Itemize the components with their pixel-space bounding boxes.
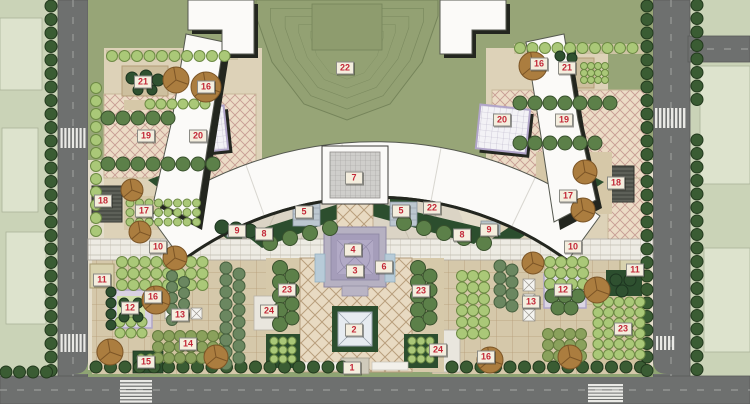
central-platform-4 bbox=[324, 227, 386, 296]
light-tree-icon bbox=[140, 268, 151, 279]
street-tree-icon bbox=[45, 284, 57, 296]
light-tree-icon bbox=[615, 43, 626, 54]
grey-tree-icon bbox=[233, 340, 245, 352]
olive-tree-icon bbox=[543, 340, 554, 351]
dark-tree-icon bbox=[555, 51, 565, 61]
street-tree-icon bbox=[45, 68, 57, 80]
street-tree-icon bbox=[691, 323, 703, 335]
light-tree-icon bbox=[614, 308, 624, 318]
light-tree-icon bbox=[169, 51, 180, 62]
light-tree-icon bbox=[604, 350, 614, 360]
medium-tree-icon bbox=[437, 226, 452, 241]
light-tree-icon bbox=[197, 280, 208, 291]
dark-tree-icon bbox=[215, 220, 229, 234]
light-tree-icon bbox=[151, 257, 162, 268]
grey-tree-icon bbox=[506, 276, 518, 288]
light-tree-icon bbox=[193, 218, 201, 226]
street-tree-icon bbox=[641, 162, 653, 174]
grey-tree-icon bbox=[233, 292, 245, 304]
street-tree-icon bbox=[641, 270, 653, 282]
light-tree-icon bbox=[578, 268, 589, 279]
medium-tree-icon bbox=[603, 96, 617, 110]
street-tree-icon bbox=[641, 243, 653, 255]
crosswalk-stripe bbox=[83, 128, 85, 148]
pyramid-fountain-2 bbox=[332, 306, 378, 352]
medium-tree-icon bbox=[161, 111, 175, 125]
light-tree-icon bbox=[590, 43, 601, 54]
street-tree-icon bbox=[14, 366, 26, 378]
light-tree-icon bbox=[457, 294, 468, 305]
street-tree-icon bbox=[45, 230, 57, 242]
crosswalk-stripe bbox=[83, 334, 85, 352]
medium-tree-icon bbox=[573, 136, 587, 150]
olive-tree-icon bbox=[186, 353, 197, 364]
light-tree-icon bbox=[457, 305, 468, 316]
olive-tree-icon bbox=[543, 329, 554, 340]
dark-tree-icon bbox=[624, 274, 636, 286]
dark-tree-icon bbox=[133, 312, 143, 322]
light-tree-icon bbox=[126, 209, 134, 217]
street-tree-icon bbox=[641, 203, 653, 215]
dark-tree-icon bbox=[140, 70, 152, 82]
street-tree-icon bbox=[691, 296, 703, 308]
light-tree-icon bbox=[174, 199, 182, 207]
light-tree-icon bbox=[468, 305, 479, 316]
street-tree-icon bbox=[641, 189, 653, 201]
grey-tree-icon bbox=[506, 300, 518, 312]
light-tree-icon bbox=[155, 218, 163, 226]
crosswalk-stripe bbox=[68, 128, 70, 148]
light-tree-icon bbox=[595, 70, 602, 77]
light-tree-icon bbox=[178, 99, 188, 109]
feature-9-right bbox=[481, 221, 500, 235]
street-tree-icon bbox=[504, 361, 516, 373]
street-tree-icon bbox=[250, 361, 262, 373]
medium-tree-icon bbox=[423, 283, 437, 297]
crosswalk-stripe bbox=[64, 334, 66, 352]
light-tree-icon bbox=[157, 51, 168, 62]
light-tree-icon bbox=[417, 346, 425, 354]
olive-tree-icon bbox=[208, 331, 219, 342]
grey-tree-icon bbox=[167, 315, 178, 326]
street-tree-icon bbox=[641, 68, 653, 80]
light-tree-icon bbox=[183, 199, 191, 207]
grey-tree-icon bbox=[167, 271, 178, 282]
street-tree-icon bbox=[691, 283, 703, 295]
crosswalk-stripe bbox=[663, 108, 665, 128]
crosswalk-stripe bbox=[68, 334, 70, 352]
street-tree-icon bbox=[45, 243, 57, 255]
grey-tree-icon bbox=[179, 310, 190, 321]
grey-tree-icon bbox=[494, 260, 506, 272]
light-tree-icon bbox=[137, 354, 145, 362]
grey-tree-icon bbox=[167, 282, 178, 293]
crosswalk-stripe bbox=[588, 397, 623, 399]
street-tree-icon bbox=[641, 95, 653, 107]
medium-tree-icon bbox=[101, 111, 115, 125]
light-tree-icon bbox=[145, 199, 153, 207]
street-tree-icon bbox=[641, 365, 653, 377]
light-tree-icon bbox=[197, 257, 208, 268]
light-tree-icon bbox=[457, 271, 468, 282]
street-tree-icon bbox=[119, 361, 131, 373]
light-tree-icon bbox=[167, 99, 177, 109]
olive-tree-icon bbox=[153, 342, 164, 353]
olive-tree-icon bbox=[554, 329, 565, 340]
light-tree-icon bbox=[155, 199, 163, 207]
light-tree-icon bbox=[117, 268, 128, 279]
medium-tree-icon bbox=[423, 297, 437, 311]
light-tree-icon bbox=[145, 209, 153, 217]
street-tree-icon bbox=[691, 40, 703, 52]
street-tree-icon bbox=[641, 216, 653, 228]
crosswalk-stripe bbox=[76, 334, 78, 352]
grey-tree-icon bbox=[220, 274, 232, 286]
light-tree-icon bbox=[578, 257, 589, 268]
street-tree-icon bbox=[45, 81, 57, 93]
dark-tree-icon bbox=[616, 285, 628, 297]
light-tree-icon bbox=[91, 109, 102, 120]
light-tree-icon bbox=[457, 328, 468, 339]
crosswalk-stripe bbox=[660, 336, 662, 350]
light-tree-icon bbox=[614, 339, 624, 349]
light-tree-icon bbox=[91, 200, 102, 211]
olive-tree-icon bbox=[576, 329, 587, 340]
light-tree-icon bbox=[635, 297, 645, 307]
crosswalk-stripe bbox=[675, 108, 677, 128]
light-tree-icon bbox=[270, 355, 278, 363]
lawn-court bbox=[312, 4, 382, 50]
light-tree-icon bbox=[193, 209, 201, 217]
street-tree-icon bbox=[691, 134, 703, 146]
light-tree-icon bbox=[457, 317, 468, 328]
crosswalk-stripe bbox=[120, 394, 152, 396]
water-channel-right-6 bbox=[385, 254, 395, 282]
light-tree-icon bbox=[174, 209, 182, 217]
light-tree-icon bbox=[417, 337, 425, 345]
light-tree-icon bbox=[588, 77, 595, 84]
light-tree-icon bbox=[408, 346, 416, 354]
street-tree-icon bbox=[45, 270, 57, 282]
street-tree-icon bbox=[641, 41, 653, 53]
street-tree-icon bbox=[691, 161, 703, 173]
street-tree-icon bbox=[45, 338, 57, 350]
street-tree-icon bbox=[691, 242, 703, 254]
light-tree-icon bbox=[91, 96, 102, 107]
street-tree-icon bbox=[519, 361, 531, 373]
light-tree-icon bbox=[625, 339, 635, 349]
medium-tree-icon bbox=[573, 96, 587, 110]
street-tree-icon bbox=[691, 80, 703, 92]
light-tree-icon bbox=[556, 279, 567, 290]
grey-tree-icon bbox=[233, 280, 245, 292]
medium-tree-icon bbox=[131, 157, 145, 171]
crosswalk-stripe bbox=[659, 108, 661, 128]
street-tree-icon bbox=[45, 162, 57, 174]
crosswalk-stripe bbox=[588, 394, 623, 396]
medium-tree-icon bbox=[323, 221, 338, 236]
light-tree-icon bbox=[91, 226, 102, 237]
street-tree-icon bbox=[45, 257, 57, 269]
crosswalk-stripe bbox=[120, 380, 152, 382]
light-tree-icon bbox=[625, 329, 635, 339]
street-tree-icon bbox=[45, 311, 57, 323]
dark-tree-icon bbox=[133, 85, 143, 95]
light-tree-icon bbox=[595, 63, 602, 70]
light-tree-icon bbox=[417, 355, 425, 363]
light-tree-icon bbox=[567, 257, 578, 268]
light-tree-icon bbox=[604, 318, 614, 328]
medium-tree-icon bbox=[457, 231, 472, 246]
olive-tree-icon bbox=[164, 353, 175, 364]
light-tree-icon bbox=[581, 70, 588, 77]
olive-tree-icon bbox=[175, 353, 186, 364]
crosswalk-stripe bbox=[120, 383, 152, 385]
street-tree-icon bbox=[293, 361, 305, 373]
light-tree-icon bbox=[115, 328, 125, 338]
light-tree-icon bbox=[117, 280, 128, 291]
kiosk-11-left bbox=[90, 264, 114, 288]
light-tree-icon bbox=[468, 271, 479, 282]
light-tree-icon bbox=[625, 297, 635, 307]
light-tree-icon bbox=[126, 328, 136, 338]
light-tree-icon bbox=[91, 122, 102, 133]
light-tree-icon bbox=[91, 161, 102, 172]
medium-tree-icon bbox=[417, 221, 432, 236]
light-tree-icon bbox=[604, 329, 614, 339]
light-tree-icon bbox=[457, 282, 468, 293]
crosswalk-stripe bbox=[672, 336, 674, 350]
olive-tree-icon bbox=[164, 342, 175, 353]
light-tree-icon bbox=[635, 350, 645, 360]
light-tree-icon bbox=[468, 317, 479, 328]
medium-tree-icon bbox=[285, 311, 299, 325]
light-tree-icon bbox=[635, 318, 645, 328]
medium-tree-icon bbox=[588, 136, 602, 150]
street-tree-icon bbox=[548, 361, 560, 373]
medium-tree-icon bbox=[588, 96, 602, 110]
street-tree-icon bbox=[641, 230, 653, 242]
site-plan-canvas: 2221161920162120191817171898985572243610… bbox=[0, 0, 750, 404]
dark-tree-icon bbox=[229, 222, 243, 236]
street-tree-icon bbox=[641, 81, 653, 93]
light-tree-icon bbox=[189, 99, 199, 109]
crosswalk-stripe bbox=[683, 108, 685, 128]
crosswalk-stripe bbox=[668, 336, 670, 350]
light-tree-icon bbox=[156, 99, 166, 109]
light-tree-icon bbox=[408, 337, 416, 345]
light-tree-icon bbox=[145, 99, 155, 109]
light-tree-icon bbox=[614, 318, 624, 328]
light-tree-icon bbox=[91, 187, 102, 198]
medium-tree-icon bbox=[423, 269, 437, 283]
street-tree-icon bbox=[691, 364, 703, 376]
olive-tree-icon bbox=[186, 342, 197, 353]
grey-tree-icon bbox=[494, 284, 506, 296]
light-tree-icon bbox=[164, 209, 172, 217]
light-tree-icon bbox=[604, 339, 614, 349]
light-tree-icon bbox=[595, 77, 602, 84]
street-tree-icon bbox=[45, 108, 57, 120]
street-tree-icon bbox=[641, 122, 653, 134]
light-tree-icon bbox=[593, 318, 603, 328]
street-tree-icon bbox=[41, 366, 53, 378]
grey-tree-icon bbox=[506, 288, 518, 300]
medium-tree-icon bbox=[543, 136, 557, 150]
medium-tree-icon bbox=[285, 297, 299, 311]
light-tree-icon bbox=[588, 63, 595, 70]
light-tree-icon bbox=[183, 209, 191, 217]
street-tree-icon bbox=[641, 149, 653, 161]
street-tree-icon bbox=[308, 361, 320, 373]
street-tree-icon bbox=[641, 257, 653, 269]
light-tree-icon bbox=[545, 257, 556, 268]
olive-tree-icon bbox=[175, 342, 186, 353]
crosswalk-stripe bbox=[120, 387, 152, 389]
crosswalk-stripe bbox=[664, 336, 666, 350]
axis-paving-strip bbox=[337, 204, 373, 228]
medium-tree-icon bbox=[101, 157, 115, 171]
crosswalk-stripe bbox=[667, 108, 669, 128]
water-channel-left bbox=[315, 254, 325, 282]
light-tree-icon bbox=[183, 218, 191, 226]
street-tree-icon bbox=[591, 361, 603, 373]
street-tree-icon bbox=[691, 188, 703, 200]
olive-tree-icon bbox=[186, 331, 197, 342]
medium-tree-icon bbox=[116, 157, 130, 171]
dark-tree-icon bbox=[243, 224, 257, 238]
grey-tree-icon bbox=[220, 334, 232, 346]
dark-tree-icon bbox=[106, 298, 116, 308]
light-tree-icon bbox=[91, 213, 102, 224]
light-tree-icon bbox=[614, 329, 624, 339]
light-tree-icon bbox=[288, 355, 296, 363]
street-tree-icon bbox=[691, 53, 703, 65]
medium-tree-icon bbox=[397, 216, 412, 231]
dark-tree-icon bbox=[567, 53, 577, 63]
light-tree-icon bbox=[164, 199, 172, 207]
light-tree-icon bbox=[151, 268, 162, 279]
light-tree-icon bbox=[556, 268, 567, 279]
olive-tree-icon bbox=[153, 331, 164, 342]
street-tree-icon bbox=[691, 26, 703, 38]
medium-tree-icon bbox=[513, 96, 527, 110]
street-tree-icon bbox=[45, 135, 57, 147]
grey-tree-icon bbox=[233, 304, 245, 316]
medium-tree-icon bbox=[283, 231, 298, 246]
light-tree-icon bbox=[577, 43, 588, 54]
light-tree-icon bbox=[479, 305, 490, 316]
medium-tree-icon bbox=[564, 301, 578, 315]
street-tree-icon bbox=[691, 94, 703, 106]
grey-tree-icon bbox=[179, 277, 190, 288]
light-tree-icon bbox=[119, 51, 130, 62]
street-tree-icon bbox=[322, 361, 334, 373]
street-tree-icon bbox=[691, 215, 703, 227]
street-tree-icon bbox=[45, 0, 57, 12]
light-tree-icon bbox=[581, 63, 588, 70]
light-tree-icon bbox=[625, 350, 635, 360]
street-tree-icon bbox=[691, 350, 703, 362]
grey-tree-icon bbox=[220, 310, 232, 322]
dark-tree-icon bbox=[119, 298, 129, 308]
medium-tree-icon bbox=[558, 96, 572, 110]
street-tree-icon bbox=[45, 149, 57, 161]
crosswalk-stripe bbox=[76, 128, 78, 148]
street-tree-icon bbox=[641, 54, 653, 66]
light-tree-icon bbox=[155, 209, 163, 217]
street-tree-icon bbox=[641, 284, 653, 296]
pavilion-7-roof-top bbox=[330, 152, 380, 198]
light-tree-icon bbox=[144, 51, 155, 62]
grey-tree-icon bbox=[233, 352, 245, 364]
light-tree-icon bbox=[593, 339, 603, 349]
street-tree-icon bbox=[641, 14, 653, 26]
light-tree-icon bbox=[627, 43, 638, 54]
street-tree-icon bbox=[691, 256, 703, 268]
grey-tree-icon bbox=[506, 264, 518, 276]
street-tree-icon bbox=[691, 175, 703, 187]
street-tree-icon bbox=[0, 366, 12, 378]
light-tree-icon bbox=[614, 297, 624, 307]
light-tree-icon bbox=[468, 282, 479, 293]
crosswalk-stripe bbox=[671, 108, 673, 128]
street-tree-icon bbox=[90, 361, 102, 373]
medium-tree-icon bbox=[477, 236, 492, 251]
street-tree-icon bbox=[45, 203, 57, 215]
light-tree-icon bbox=[174, 218, 182, 226]
light-tree-icon bbox=[207, 51, 218, 62]
light-tree-icon bbox=[408, 355, 416, 363]
medium-tree-icon bbox=[513, 136, 527, 150]
pavilion-squares-13-right bbox=[523, 279, 535, 321]
light-tree-icon bbox=[545, 279, 556, 290]
crosswalk-stripe bbox=[64, 128, 66, 148]
street-tree-icon bbox=[691, 337, 703, 349]
light-tree-icon bbox=[288, 346, 296, 354]
light-tree-icon bbox=[479, 282, 490, 293]
medium-tree-icon bbox=[116, 111, 130, 125]
light-tree-icon bbox=[602, 77, 609, 84]
crosswalk-stripe bbox=[656, 336, 658, 350]
platform-step-3 bbox=[342, 286, 368, 296]
street-tree-icon bbox=[641, 176, 653, 188]
street-tree-icon bbox=[45, 189, 57, 201]
medium-tree-icon bbox=[423, 311, 437, 325]
light-tree-icon bbox=[270, 346, 278, 354]
dark-tree-icon bbox=[147, 85, 157, 95]
light-tree-icon bbox=[164, 218, 172, 226]
street-tree-icon bbox=[27, 366, 39, 378]
dark-tree-icon bbox=[126, 72, 138, 84]
light-tree-icon bbox=[635, 329, 645, 339]
dark-tree-icon bbox=[119, 312, 129, 322]
crosswalk-stripe bbox=[61, 128, 63, 148]
street-tree-icon bbox=[45, 14, 57, 26]
medium-tree-icon bbox=[285, 269, 299, 283]
light-tree-icon bbox=[614, 350, 624, 360]
light-tree-icon bbox=[625, 318, 635, 328]
light-tree-icon bbox=[279, 337, 287, 345]
medium-tree-icon bbox=[543, 96, 557, 110]
olive-tree-icon bbox=[175, 331, 186, 342]
olive-tree-icon bbox=[153, 353, 164, 364]
light-tree-icon bbox=[270, 337, 278, 345]
crosswalk-stripe bbox=[80, 128, 82, 148]
light-tree-icon bbox=[581, 77, 588, 84]
light-tree-icon bbox=[468, 294, 479, 305]
medium-tree-icon bbox=[176, 157, 190, 171]
